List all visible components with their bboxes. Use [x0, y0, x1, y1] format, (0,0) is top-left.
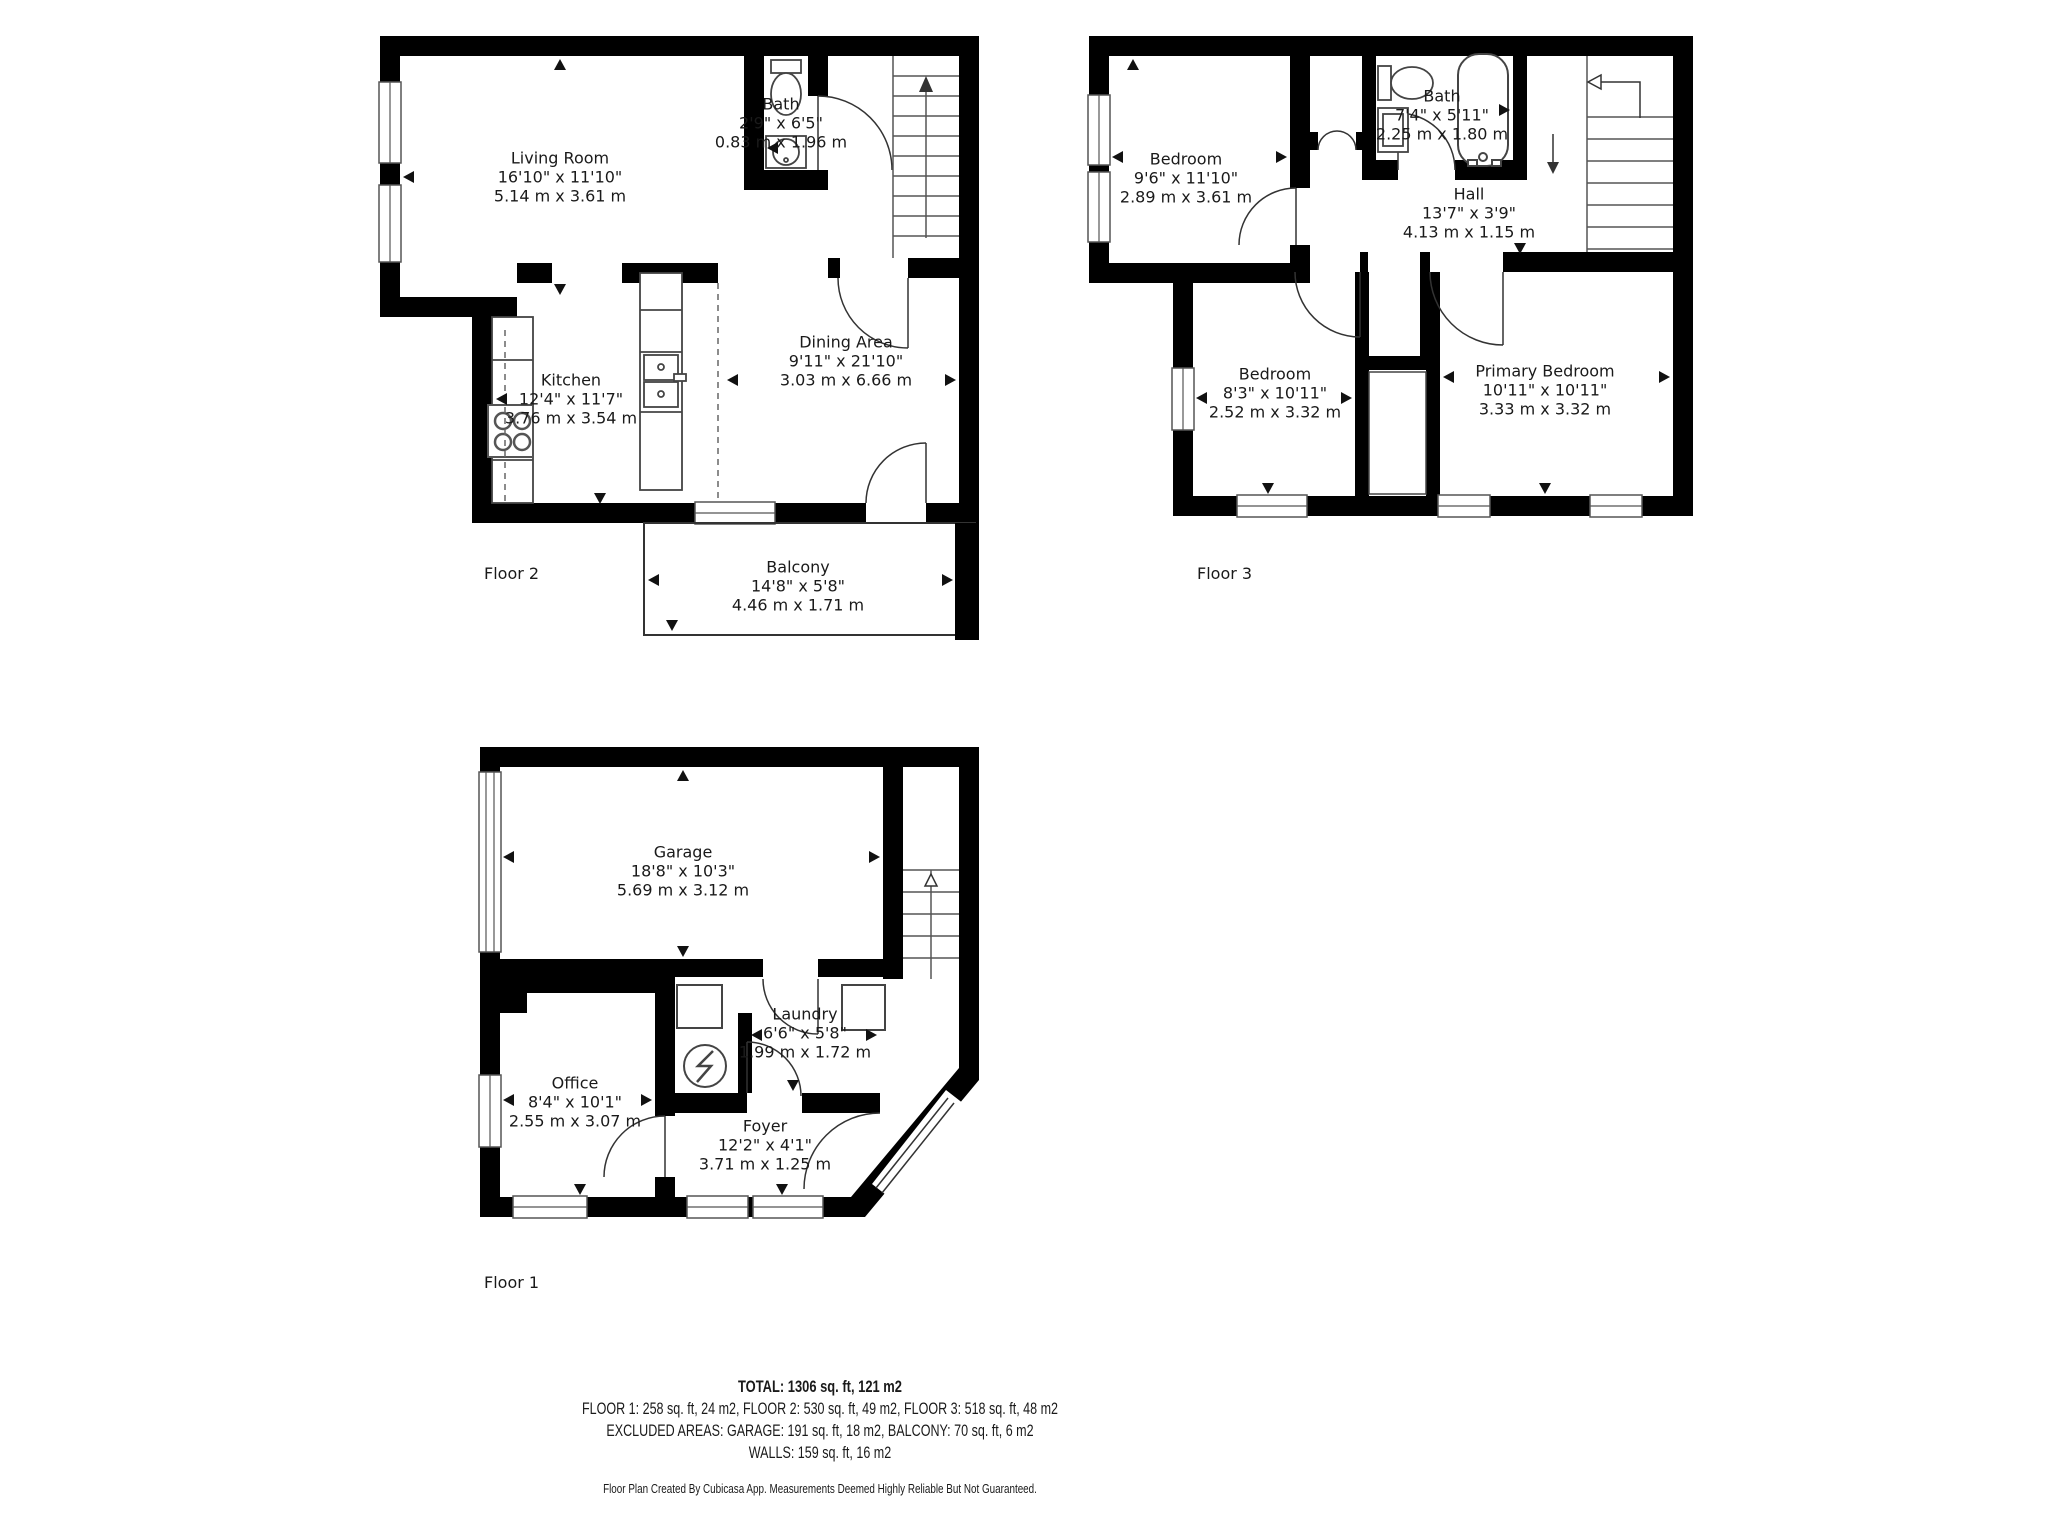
room-dim-imperial: 7'4" x 5'11"	[1376, 106, 1508, 125]
room-name: Kitchen	[505, 371, 637, 390]
electrical-panel-icon	[684, 1045, 726, 1087]
room-dim-imperial: 13'7" x 3'9"	[1403, 204, 1535, 223]
room-dim-imperial: 2'9" x 6'5"	[715, 114, 847, 133]
room-label-kitchen: Kitchen 12'4" x 11'7" 3.76 m x 3.54 m	[505, 371, 637, 428]
room-label-bath-f2: Bath 2'9" x 6'5" 0.83 m x 1.96 m	[715, 95, 847, 152]
room-dim-metric: 3.33 m x 3.32 m	[1475, 400, 1614, 419]
room-label-foyer: Foyer 12'2" x 4'1" 3.71 m x 1.25 m	[699, 1117, 831, 1174]
room-name: Foyer	[699, 1117, 831, 1136]
room-label-garage: Garage 18'8" x 10'3" 5.69 m x 3.12 m	[617, 843, 749, 900]
room-name: Balcony	[732, 558, 864, 577]
room-name: Bedroom	[1209, 365, 1341, 384]
floor-plan-page: Living Room 16'10" x 11'10" 5.14 m x 3.6…	[0, 0, 2048, 1536]
room-name: Primary Bedroom	[1475, 362, 1614, 381]
room-dim-imperial: 12'4" x 11'7"	[505, 390, 637, 409]
room-name: Bedroom	[1120, 150, 1252, 169]
room-name: Living Room	[494, 149, 626, 168]
room-dim-metric: 2.89 m x 3.61 m	[1120, 188, 1252, 207]
room-dim-imperial: 12'2" x 4'1"	[699, 1136, 831, 1155]
room-dim-metric: 4.13 m x 1.15 m	[1403, 223, 1535, 242]
room-name: Garage	[617, 843, 749, 862]
room-name: Dining Area	[780, 333, 912, 352]
summary-disclaimer: Floor Plan Created By Cubicasa App. Meas…	[582, 1481, 1058, 1496]
room-dim-imperial: 9'6" x 11'10"	[1120, 169, 1252, 188]
stairs-up-arrow-icon	[925, 874, 937, 886]
room-label-office: Office 8'4" x 10'1" 2.55 m x 3.07 m	[509, 1074, 641, 1131]
stairs-direction-arrow-icon	[1588, 75, 1601, 89]
floor-2-label: Floor 2	[484, 564, 539, 583]
room-dim-imperial: 6'6" x 5'8"	[739, 1024, 871, 1043]
room-dim-imperial: 14'8" x 5'8"	[732, 577, 864, 596]
room-label-bedroom-1: Bedroom 9'6" x 11'10" 2.89 m x 3.61 m	[1120, 150, 1252, 207]
summary-excluded: EXCLUDED AREAS: GARAGE: 191 sq. ft, 18 m…	[582, 1420, 1058, 1442]
front-door-opening	[872, 1090, 964, 1198]
room-dim-metric: 0.83 m x 1.96 m	[715, 133, 847, 152]
room-label-dining-area: Dining Area 9'11" x 21'10" 3.03 m x 6.66…	[780, 333, 912, 390]
room-dim-imperial: 8'4" x 10'1"	[509, 1093, 641, 1112]
room-dim-imperial: 8'3" x 10'11"	[1209, 384, 1341, 403]
room-label-bedroom-2: Bedroom 8'3" x 10'11" 2.52 m x 3.32 m	[1209, 365, 1341, 422]
floor-3-label: Floor 3	[1197, 564, 1252, 583]
summary-total: TOTAL: 1306 sq. ft, 121 m2	[582, 1376, 1058, 1398]
room-label-balcony: Balcony 14'8" x 5'8" 4.46 m x 1.71 m	[732, 558, 864, 615]
room-name: Office	[509, 1074, 641, 1093]
room-label-primary-bedroom: Primary Bedroom 10'11" x 10'11" 3.33 m x…	[1475, 362, 1614, 419]
room-dim-imperial: 10'11" x 10'11"	[1475, 381, 1614, 400]
stairs-up-arrow-icon	[919, 76, 933, 92]
area-summary: TOTAL: 1306 sq. ft, 121 m2 FLOOR 1: 258 …	[582, 1376, 1058, 1496]
wardrobe	[1369, 372, 1426, 494]
room-dim-metric: 2.52 m x 3.32 m	[1209, 403, 1341, 422]
room-label-bath-f3: Bath 7'4" x 5'11" 2.25 m x 1.80 m	[1376, 87, 1508, 144]
room-name: Laundry	[739, 1005, 871, 1024]
room-label-living-room: Living Room 16'10" x 11'10" 5.14 m x 3.6…	[494, 149, 626, 206]
floor-plan-drawing	[0, 0, 2048, 1536]
floor-1-label: Floor 1	[484, 1273, 539, 1292]
room-name: Hall	[1403, 185, 1535, 204]
garage-door	[479, 772, 501, 952]
summary-floors: FLOOR 1: 258 sq. ft, 24 m2, FLOOR 2: 530…	[582, 1398, 1058, 1420]
room-dim-metric: 3.03 m x 6.66 m	[780, 371, 912, 390]
room-dim-imperial: 18'8" x 10'3"	[617, 862, 749, 881]
room-dim-metric: 3.71 m x 1.25 m	[699, 1155, 831, 1174]
room-dim-imperial: 16'10" x 11'10"	[494, 168, 626, 187]
room-label-laundry: Laundry 6'6" x 5'8" 1.99 m x 1.72 m	[739, 1005, 871, 1062]
room-dim-metric: 2.25 m x 1.80 m	[1376, 125, 1508, 144]
room-dim-metric: 1.99 m x 1.72 m	[739, 1043, 871, 1062]
stairs-down-arrow-icon	[1547, 162, 1559, 174]
room-dim-metric: 2.55 m x 3.07 m	[509, 1112, 641, 1131]
summary-walls: WALLS: 159 sq. ft, 16 m2	[582, 1442, 1058, 1464]
room-name: Bath	[1376, 87, 1508, 106]
room-name: Bath	[715, 95, 847, 114]
room-dim-imperial: 9'11" x 21'10"	[780, 352, 912, 371]
room-dim-metric: 3.76 m x 3.54 m	[505, 409, 637, 428]
door-arc	[818, 96, 926, 503]
room-dim-metric: 5.69 m x 3.12 m	[617, 881, 749, 900]
room-dim-metric: 4.46 m x 1.71 m	[732, 596, 864, 615]
room-dim-metric: 5.14 m x 3.61 m	[494, 187, 626, 206]
room-label-hall: Hall 13'7" x 3'9" 4.13 m x 1.15 m	[1403, 185, 1535, 242]
